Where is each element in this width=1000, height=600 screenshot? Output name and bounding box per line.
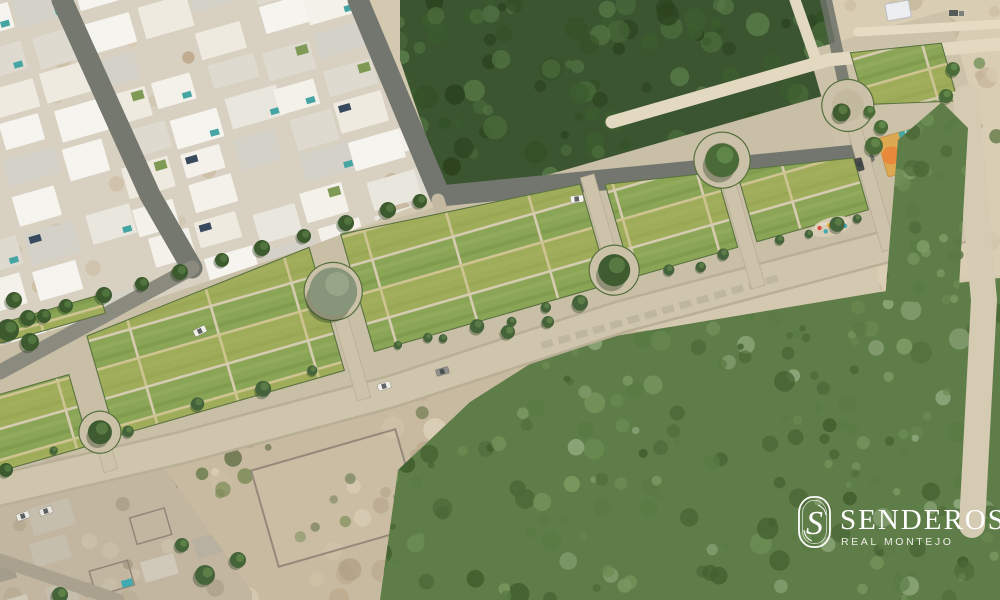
logo-title: SENDEROS bbox=[840, 504, 1000, 536]
logo-subtitle: REAL MONTEJO bbox=[841, 536, 954, 548]
cart-trailer bbox=[959, 11, 964, 16]
cart bbox=[949, 10, 958, 16]
aerial-render: S SENDEROS REAL MONTEJO bbox=[0, 0, 1000, 600]
aerial-photo: S SENDEROS REAL MONTEJO bbox=[0, 0, 1000, 600]
white-shed bbox=[885, 0, 912, 21]
monogram-letter: S bbox=[806, 505, 823, 542]
